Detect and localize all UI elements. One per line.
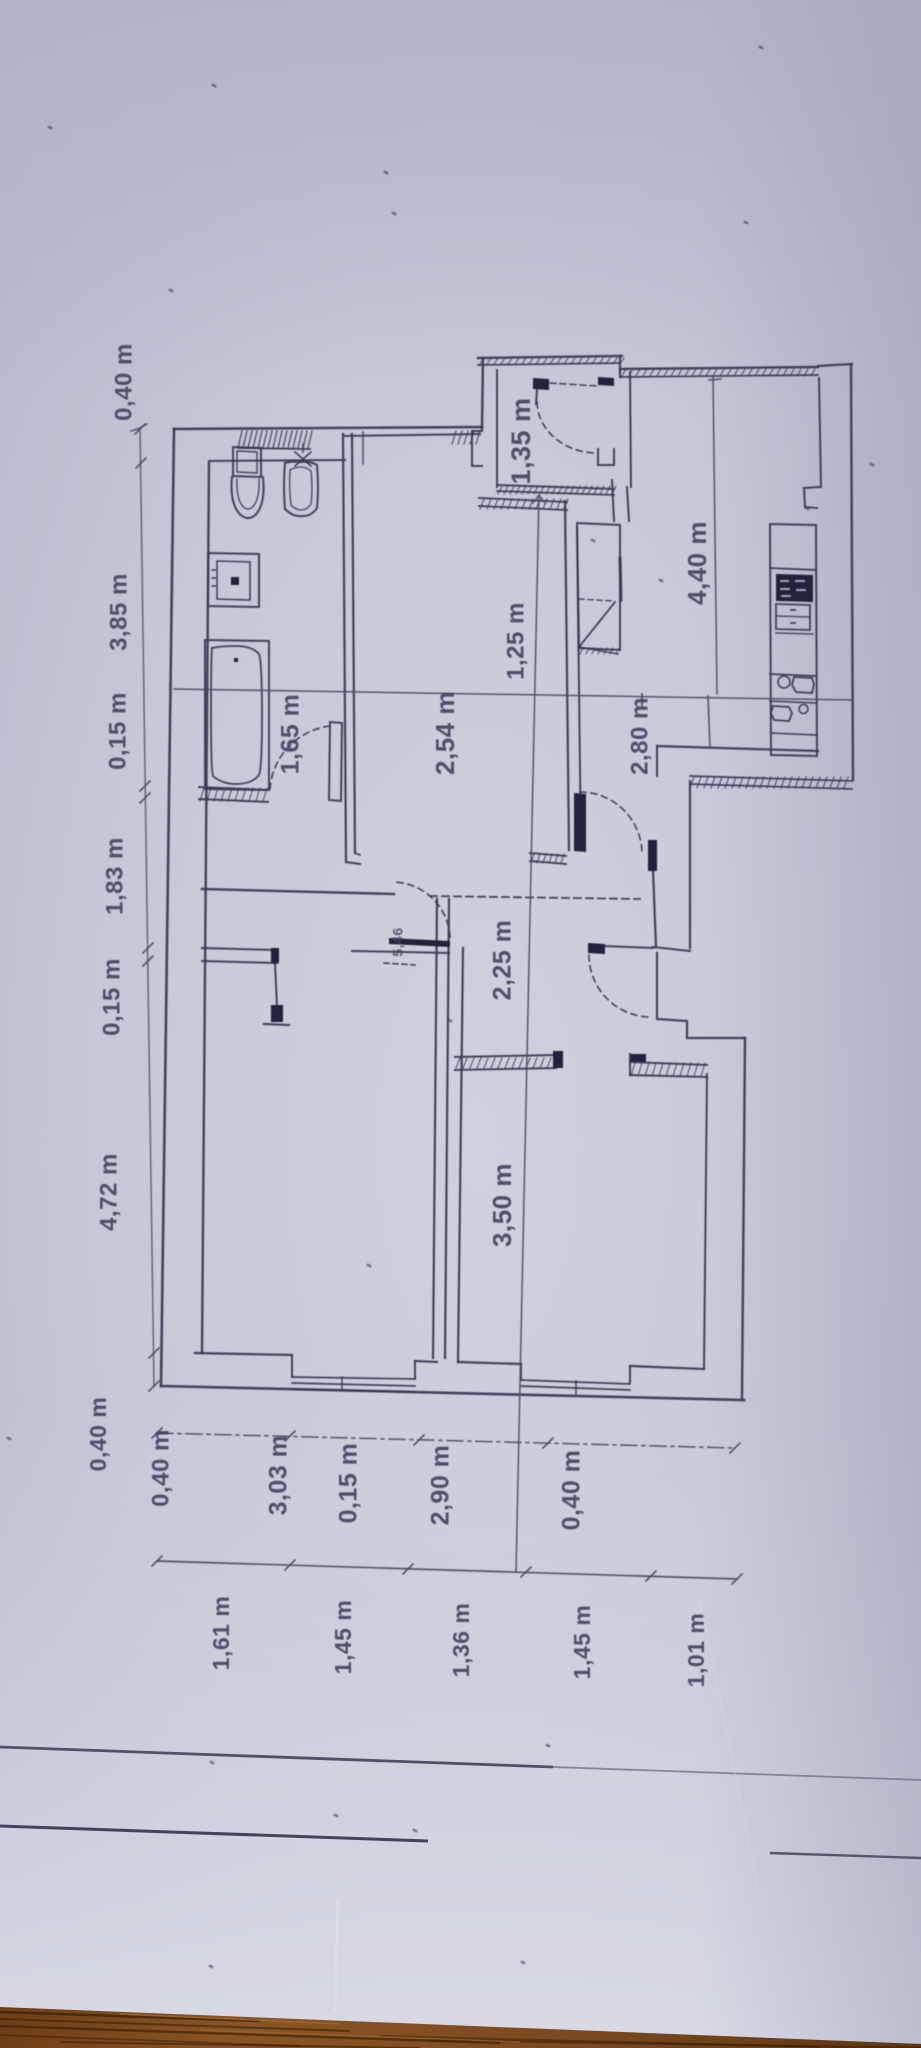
svg-text:1,83 m: 1,83 m (101, 837, 128, 915)
svg-text:3,50 m: 3,50 m (487, 1163, 517, 1247)
svg-text:0,40 m: 0,40 m (558, 1450, 586, 1531)
svg-text:1,45 m: 1,45 m (330, 1600, 356, 1675)
svg-text:2,90 m: 2,90 m (427, 1445, 455, 1526)
svg-text:2,80 m: 2,80 m (626, 697, 653, 775)
svg-text:1,61 m: 1,61 m (208, 1596, 234, 1671)
svg-text:4,72 m: 4,72 m (95, 1153, 122, 1231)
svg-text:2,54 m: 2,54 m (430, 691, 460, 775)
svg-text:4,40 m: 4,40 m (682, 521, 712, 605)
svg-text:5,46: 5,46 (390, 927, 406, 956)
svg-text:0,40 m: 0,40 m (147, 1429, 174, 1507)
svg-text:3,03 m: 3,03 m (265, 1435, 293, 1516)
svg-text:1,45 m: 1,45 m (569, 1605, 595, 1680)
svg-text:0,40 m: 0,40 m (85, 1397, 111, 1472)
svg-text:1,65 m: 1,65 m (277, 694, 305, 775)
svg-text:2,25 m: 2,25 m (489, 920, 517, 1001)
svg-text:1,36 m: 1,36 m (448, 1603, 474, 1678)
svg-text:0,15 m: 0,15 m (104, 692, 131, 770)
svg-text:3,85 m: 3,85 m (105, 573, 132, 651)
svg-text:0,40 m: 0,40 m (110, 343, 137, 421)
svg-text:1,35 m: 1,35 m (506, 397, 536, 484)
svg-text:0,15 m: 0,15 m (98, 958, 125, 1036)
svg-text:0,15 m: 0,15 m (335, 1443, 363, 1524)
svg-text:1,25 m: 1,25 m (502, 602, 529, 680)
